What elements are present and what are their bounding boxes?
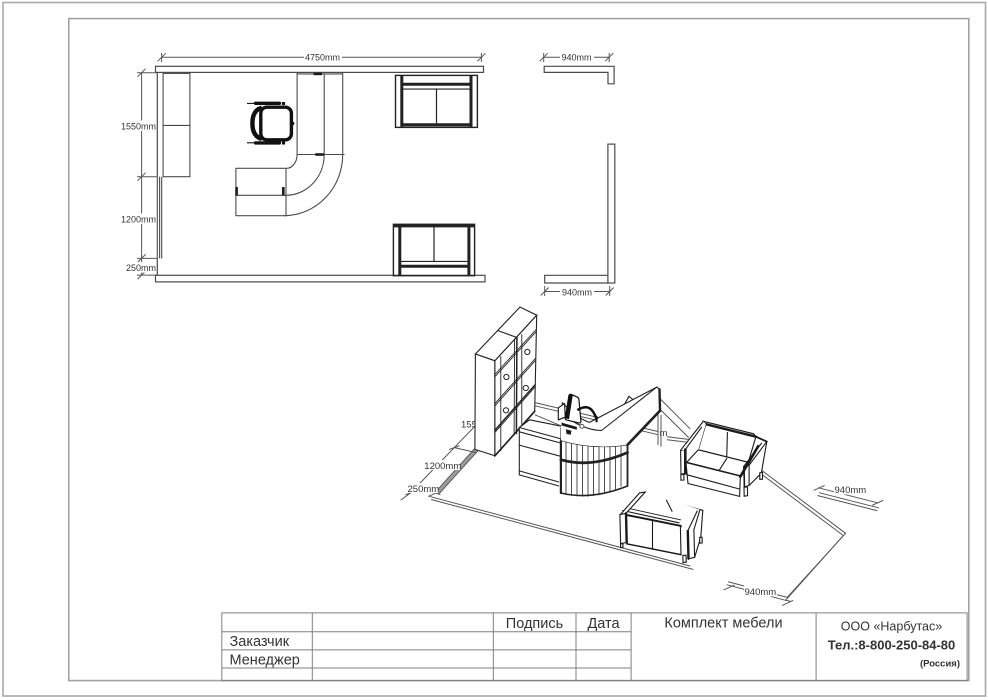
svg-text:940mm: 940mm — [745, 587, 777, 598]
svg-text:250mm: 250mm — [408, 484, 440, 495]
svg-text:Заказчик: Заказчик — [230, 634, 290, 650]
svg-text:940mm: 940mm — [835, 485, 867, 496]
svg-text:1550mm: 1550mm — [121, 121, 156, 131]
svg-text:ООО «Нарбутас»: ООО «Нарбутас» — [841, 620, 942, 634]
svg-text:940mm: 940mm — [562, 287, 592, 297]
svg-text:940mm: 940mm — [561, 52, 591, 62]
svg-text:Тел.:8-800-250-84-80: Тел.:8-800-250-84-80 — [828, 638, 956, 653]
svg-text:250mm: 250mm — [126, 263, 156, 273]
svg-text:4750mm: 4750mm — [305, 52, 340, 62]
svg-text:Дата: Дата — [587, 616, 620, 632]
svg-text:1200mm: 1200mm — [424, 461, 461, 472]
svg-text:Комплект мебели: Комплект мебели — [664, 615, 782, 631]
svg-text:Подпись: Подпись — [506, 616, 563, 632]
svg-text:(Россия): (Россия) — [920, 658, 960, 669]
svg-text:1200mm: 1200mm — [121, 214, 156, 224]
svg-text:Менеджер: Менеджер — [230, 652, 300, 668]
svg-text:m: m — [660, 428, 668, 439]
